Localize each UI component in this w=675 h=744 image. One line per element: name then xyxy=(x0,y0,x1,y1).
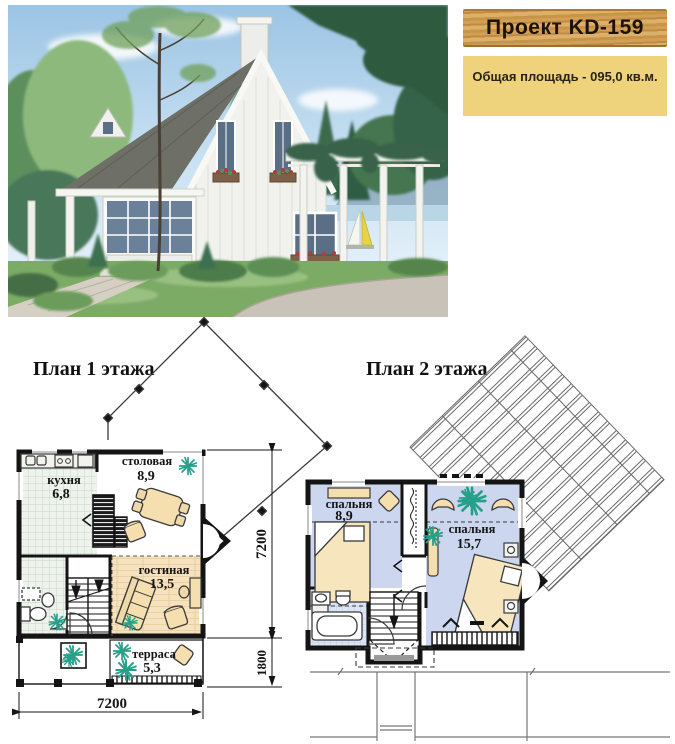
dormer-window xyxy=(103,122,113,134)
bedroom1-area: 8,9 xyxy=(335,509,353,524)
terrace-label: терраса xyxy=(132,647,177,661)
flower-box xyxy=(213,173,239,182)
pergola-column xyxy=(380,165,387,265)
kitchen-area: 6,8 xyxy=(52,487,70,502)
terrace-area: 5,3 xyxy=(143,661,161,676)
dining-area: 8,9 xyxy=(137,469,155,484)
project-title: Проект KD-159 xyxy=(486,16,644,40)
floor2-lower-roof-outline xyxy=(310,668,670,741)
dining-label: столовая xyxy=(122,454,173,468)
kitchen-label: кухня xyxy=(47,473,81,487)
plant-icon xyxy=(424,527,442,545)
floor1-wardrobe xyxy=(93,495,114,547)
bedroom2-plant xyxy=(459,488,486,515)
plant-icon xyxy=(116,660,136,680)
porch-column xyxy=(28,201,35,269)
floor1-bay-window xyxy=(203,516,231,566)
dim-bottom-width: 7200 xyxy=(97,696,127,712)
plant-icon xyxy=(123,616,137,630)
floor2-stairs xyxy=(370,592,418,662)
floor1-plan: кухня 6,8 столовая 8,9 гостиная 13,5 тер… xyxy=(15,448,282,719)
floor1-terrace xyxy=(19,638,203,684)
plant-icon xyxy=(49,614,64,629)
project-title-plate: Проект KD-159 xyxy=(463,9,667,47)
project-sheet: Проект KD-159 Общая площадь - 095,0 кв.м… xyxy=(0,0,675,744)
pergola-column xyxy=(416,165,423,265)
floor-plans: кухня 6,8 столовая 8,9 гостиная 13,5 тер… xyxy=(0,315,675,744)
chimney-cap xyxy=(237,17,272,24)
stair-landing xyxy=(374,655,414,661)
pergola-column xyxy=(340,165,347,267)
total-area-panel: Общая площадь - 095,0 кв.м. xyxy=(463,56,667,116)
dim-right-height: 7200 xyxy=(254,529,270,559)
lower-window xyxy=(291,213,339,263)
total-area-label: Общая площадь - 095,0 кв.м. xyxy=(463,69,667,84)
bedroom2-area: 15,7 xyxy=(457,537,482,552)
plant-icon xyxy=(180,458,197,475)
flower-box xyxy=(270,173,296,182)
plant-icon xyxy=(114,643,131,660)
living-label: гостиная xyxy=(139,563,190,577)
sunroom xyxy=(103,197,196,267)
bedroom2-label: спальня xyxy=(449,522,496,536)
house-painting xyxy=(8,5,448,317)
dim-terrace-depth: 1800 xyxy=(254,650,269,676)
living-area: 13,5 xyxy=(150,577,175,592)
house-illustration xyxy=(8,5,448,317)
bedroom2-window-strip xyxy=(432,632,518,645)
pergola-column xyxy=(300,165,307,269)
